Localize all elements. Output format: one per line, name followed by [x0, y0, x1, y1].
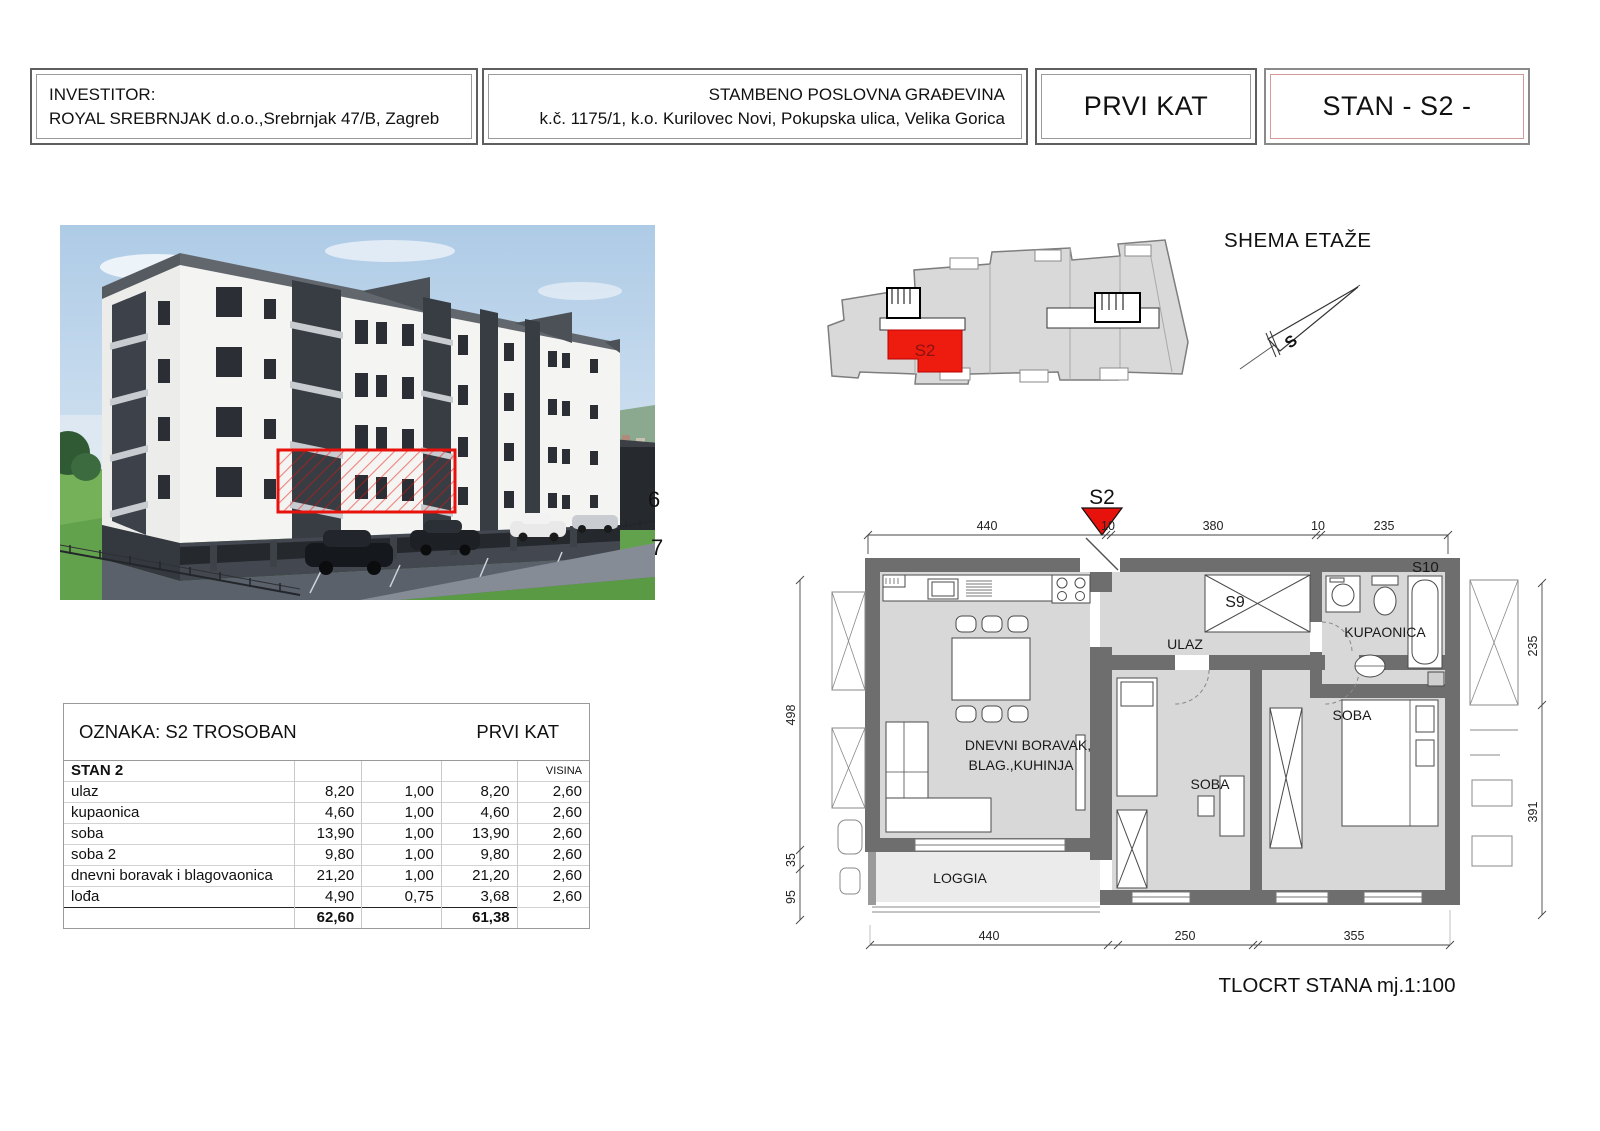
- unit-marker-label: S2: [1089, 486, 1115, 509]
- total-area: 62,60: [295, 908, 362, 929]
- investor-label: INVESTITOR:: [49, 83, 471, 107]
- row-area: 4,90: [295, 887, 362, 908]
- row-name: ulaz: [64, 782, 295, 803]
- row-net: 4,60: [441, 803, 517, 824]
- table-row: kupaonica 4,60 1,00 4,60 2,60: [64, 803, 589, 824]
- row-coef: 0,75: [362, 887, 442, 908]
- label-s10: S10: [1412, 559, 1439, 576]
- row-area: 8,20: [295, 782, 362, 803]
- floor-schema: S2 S: [820, 222, 1400, 397]
- row-height: 2,60: [517, 824, 589, 845]
- project-address: k.č. 1175/1, k.o. Kurilovec Novi, Pokups…: [489, 107, 1005, 131]
- row-coef: 1,00: [362, 824, 442, 845]
- dim-bottom-1: 440: [979, 929, 1000, 943]
- unit-label: STAN - S2 -: [1271, 91, 1523, 122]
- label-ulaz: ULAZ: [1167, 636, 1203, 652]
- row-height: 2,60: [517, 887, 589, 908]
- plan-caption: TLOCRT STANA mj.1:100: [1219, 974, 1456, 997]
- table-row: lođa 4,90 0,75 3,68 2,60: [64, 887, 589, 908]
- dim-top-1: 440: [977, 519, 998, 533]
- table-row: soba 2 9,80 1,00 9,80 2,60: [64, 845, 589, 866]
- row-coef: 1,00: [362, 803, 442, 824]
- row-area: 9,80: [295, 845, 362, 866]
- unit-highlight: [278, 450, 455, 512]
- table-floor: PRVI KAT: [476, 721, 559, 743]
- row-net: 21,20: [441, 866, 517, 887]
- total-net: 61,38: [441, 908, 517, 929]
- label-loggia: LOGGIA: [933, 870, 987, 886]
- label-living-2: BLAG.,KUHINJA: [968, 757, 1074, 773]
- row-name: soba: [64, 824, 295, 845]
- row-height: 2,60: [517, 803, 589, 824]
- unit-box: STAN - S2 -: [1264, 68, 1530, 145]
- row-net: 9,80: [441, 845, 517, 866]
- label-s9: S9: [1225, 594, 1245, 611]
- table-header-row: STAN 2 VISINA: [64, 761, 589, 782]
- area-table: OZNAKA: S2 TROSOBAN PRVI KAT STAN 2 VISI…: [63, 703, 590, 929]
- label-soba-1: SOBA: [1191, 776, 1231, 792]
- project-title: STAMBENO POSLOVNA GRAĐEVINA: [489, 83, 1005, 107]
- table-row: ulaz 8,20 1,00 8,20 2,60: [64, 782, 589, 803]
- dim-top-3: 380: [1203, 519, 1224, 533]
- table-row: soba 13,90 1,00 13,90 2,60: [64, 824, 589, 845]
- row-name: dnevni boravak i blagovaonica: [64, 866, 295, 887]
- row-area: 13,90: [295, 824, 362, 845]
- schema-unit-label: S2: [915, 341, 936, 360]
- row-name: lođa: [64, 887, 295, 908]
- row-name: kupaonica: [64, 803, 295, 824]
- row-coef: 1,00: [362, 866, 442, 887]
- row-height: 2,60: [517, 845, 589, 866]
- text-fragment-7: 7: [651, 535, 663, 561]
- table-header-visina: VISINA: [517, 761, 589, 782]
- row-net: 8,20: [441, 782, 517, 803]
- table-title: OZNAKA: S2 TROSOBAN: [79, 721, 297, 743]
- project-box: STAMBENO POSLOVNA GRAĐEVINA k.č. 1175/1,…: [482, 68, 1028, 145]
- building-render: [60, 225, 655, 600]
- dim-left-2: 35: [784, 853, 798, 867]
- row-height: 2,60: [517, 782, 589, 803]
- row-area: 4,60: [295, 803, 362, 824]
- row-net: 13,90: [441, 824, 517, 845]
- row-net: 3,68: [441, 887, 517, 908]
- table-row: dnevni boravak i blagovaonica 21,20 1,00…: [64, 866, 589, 887]
- row-name: soba 2: [64, 845, 295, 866]
- dim-left-1: 498: [784, 705, 798, 726]
- label-soba-2: SOBA: [1333, 707, 1373, 723]
- dim-top-5: 235: [1374, 519, 1395, 533]
- dim-top-4: 10: [1311, 519, 1325, 533]
- row-coef: 1,00: [362, 845, 442, 866]
- floor-plan: S2 ULAZ KUPAONICA SOBA SOBA DNEVNI BORAV…: [780, 480, 1570, 1005]
- floor-label: PRVI KAT: [1042, 91, 1250, 122]
- text-fragment-6: 6: [648, 487, 660, 513]
- dim-right-1: 235: [1526, 636, 1540, 657]
- floor-box: PRVI KAT: [1035, 68, 1257, 145]
- row-area: 21,20: [295, 866, 362, 887]
- investor-name: ROYAL SREBRNJAK d.o.o.,Srebrnjak 47/B, Z…: [49, 107, 471, 131]
- dim-right-2: 391: [1526, 802, 1540, 823]
- dim-bottom-2: 250: [1175, 929, 1196, 943]
- table-total-row: 62,60 61,38: [64, 908, 589, 929]
- dim-bottom-3: 355: [1344, 929, 1365, 943]
- row-coef: 1,00: [362, 782, 442, 803]
- dim-top-2: 10: [1101, 519, 1115, 533]
- investor-box: INVESTITOR: ROYAL SREBRNJAK d.o.o.,Srebr…: [30, 68, 478, 145]
- row-height: 2,60: [517, 866, 589, 887]
- plan-sheet: { "header": { "investor_label": "INVESTI…: [0, 0, 1600, 1131]
- dim-left-3: 95: [784, 890, 798, 904]
- label-kupaonica: KUPAONICA: [1344, 624, 1426, 640]
- table-header-name: STAN 2: [64, 761, 295, 782]
- north-arrow: S: [1240, 285, 1360, 369]
- label-living-1: DNEVNI BORAVAK,: [965, 737, 1091, 753]
